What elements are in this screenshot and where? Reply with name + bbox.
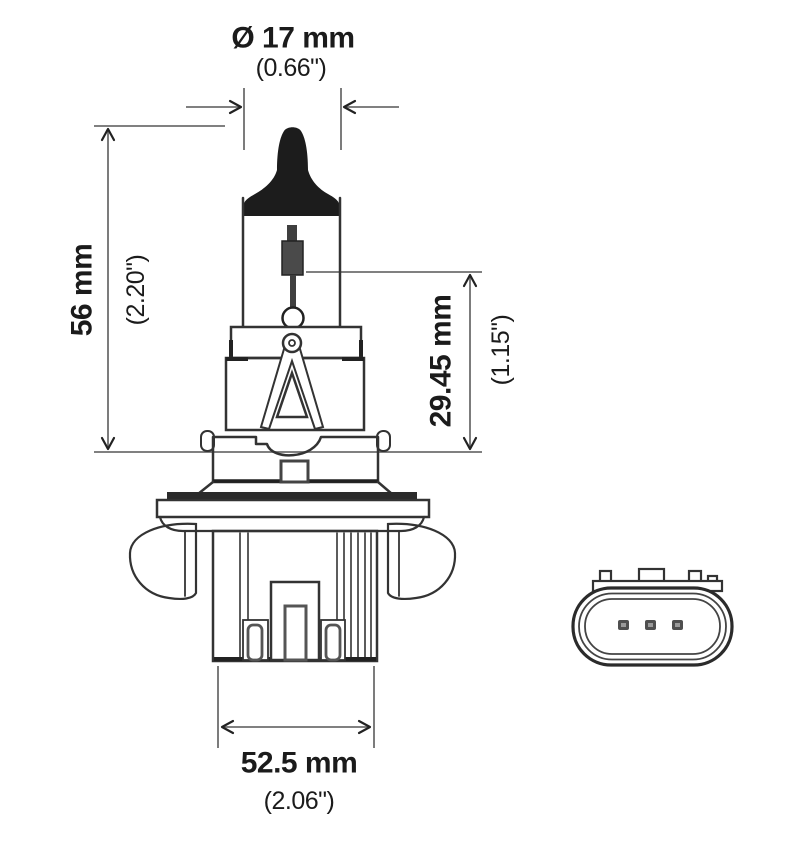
base-drum bbox=[198, 431, 392, 494]
pin-highlight bbox=[675, 623, 680, 627]
base-body bbox=[213, 531, 377, 661]
pin-highlight bbox=[621, 623, 626, 627]
bulb-dimension-diagram: Ø 17 mm (0.66") 56 mm (2.20") 29.45 mm (… bbox=[0, 0, 800, 843]
wing-left bbox=[130, 524, 196, 599]
filament-metric-label: 29.45 mm bbox=[425, 295, 458, 428]
diameter-imperial-label: (0.66") bbox=[256, 54, 327, 82]
base-width-imperial-label: (2.06") bbox=[264, 787, 335, 815]
terminal-bracket-left-inner bbox=[248, 625, 262, 660]
filament-assembly bbox=[282, 225, 304, 329]
filament-imperial-label: (1.15") bbox=[487, 315, 515, 386]
height-metric-label: 56 mm bbox=[66, 244, 99, 337]
connector-drawing bbox=[573, 569, 732, 665]
wing-right bbox=[388, 524, 455, 599]
connector-pin-3 bbox=[672, 620, 683, 630]
dimension-filament-height: 29.45 mm (1.15") bbox=[306, 272, 515, 449]
terminal-bracket-right-inner bbox=[326, 625, 340, 660]
filament-stem bbox=[290, 275, 296, 308]
filament-tip bbox=[287, 225, 297, 241]
filament-bead bbox=[283, 308, 304, 329]
height-imperial-label: (2.20") bbox=[122, 255, 150, 326]
support-pivot-hole bbox=[289, 340, 295, 346]
connector-pin-2 bbox=[645, 620, 656, 630]
diameter-metric-label: Ø 17 mm bbox=[231, 22, 354, 55]
pin-highlight bbox=[648, 623, 653, 627]
filament-body bbox=[282, 241, 303, 275]
connector-pin-1 bbox=[618, 620, 629, 630]
flange-lip bbox=[160, 517, 424, 531]
diagram-canvas: Ø 17 mm (0.66") 56 mm (2.20") 29.45 mm (… bbox=[0, 0, 800, 843]
flange-plate bbox=[157, 500, 429, 517]
bulb-drawing bbox=[130, 127, 455, 661]
drum-key-tab bbox=[281, 461, 308, 482]
dimension-base-width: 52.5 mm (2.06") bbox=[218, 666, 374, 815]
bulb-black-tip bbox=[243, 127, 340, 216]
terminal-slot bbox=[285, 606, 306, 660]
base-width-metric-label: 52.5 mm bbox=[241, 747, 358, 780]
